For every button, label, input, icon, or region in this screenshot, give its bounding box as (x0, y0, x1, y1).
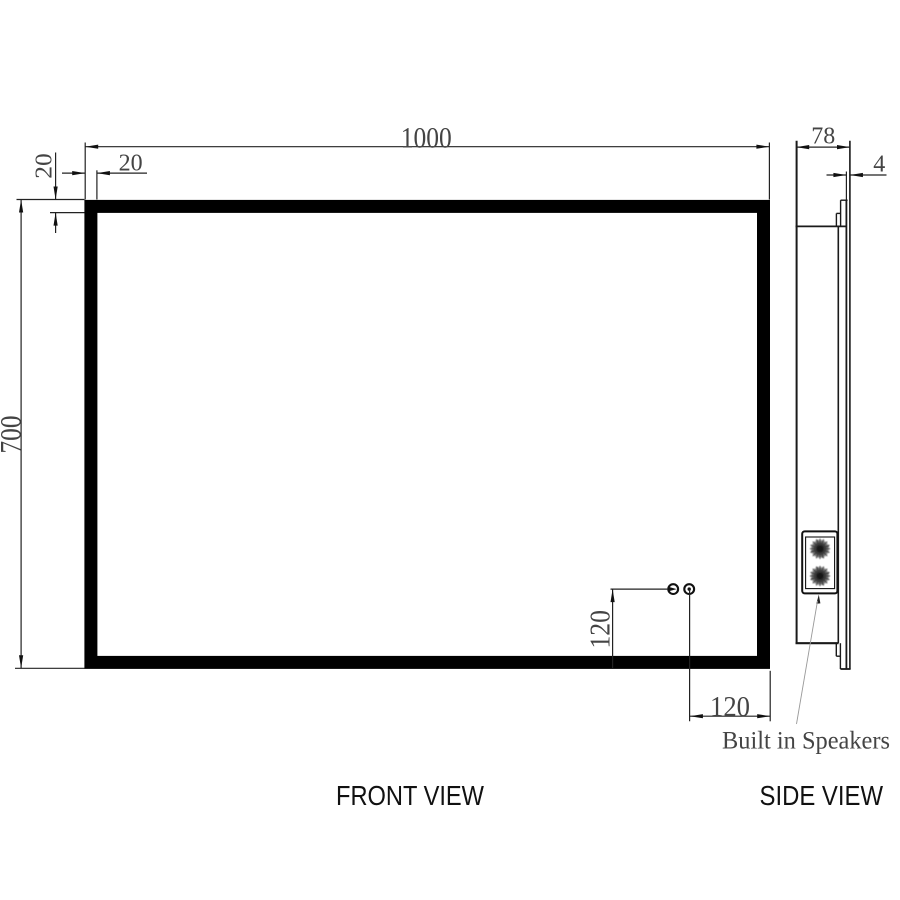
svg-text:Built in Speakers: Built in Speakers (722, 728, 890, 755)
svg-text:78: 78 (811, 124, 835, 150)
svg-text:4: 4 (873, 152, 885, 178)
svg-text:SIDE VIEW: SIDE VIEW (760, 780, 884, 811)
svg-text:120: 120 (585, 610, 616, 649)
svg-text:FRONT VIEW: FRONT VIEW (336, 780, 484, 811)
svg-text:1000: 1000 (401, 121, 452, 154)
svg-text:120: 120 (710, 692, 750, 723)
svg-text:20: 20 (31, 153, 57, 179)
svg-text:700: 700 (0, 416, 28, 454)
svg-text:20: 20 (119, 151, 143, 177)
